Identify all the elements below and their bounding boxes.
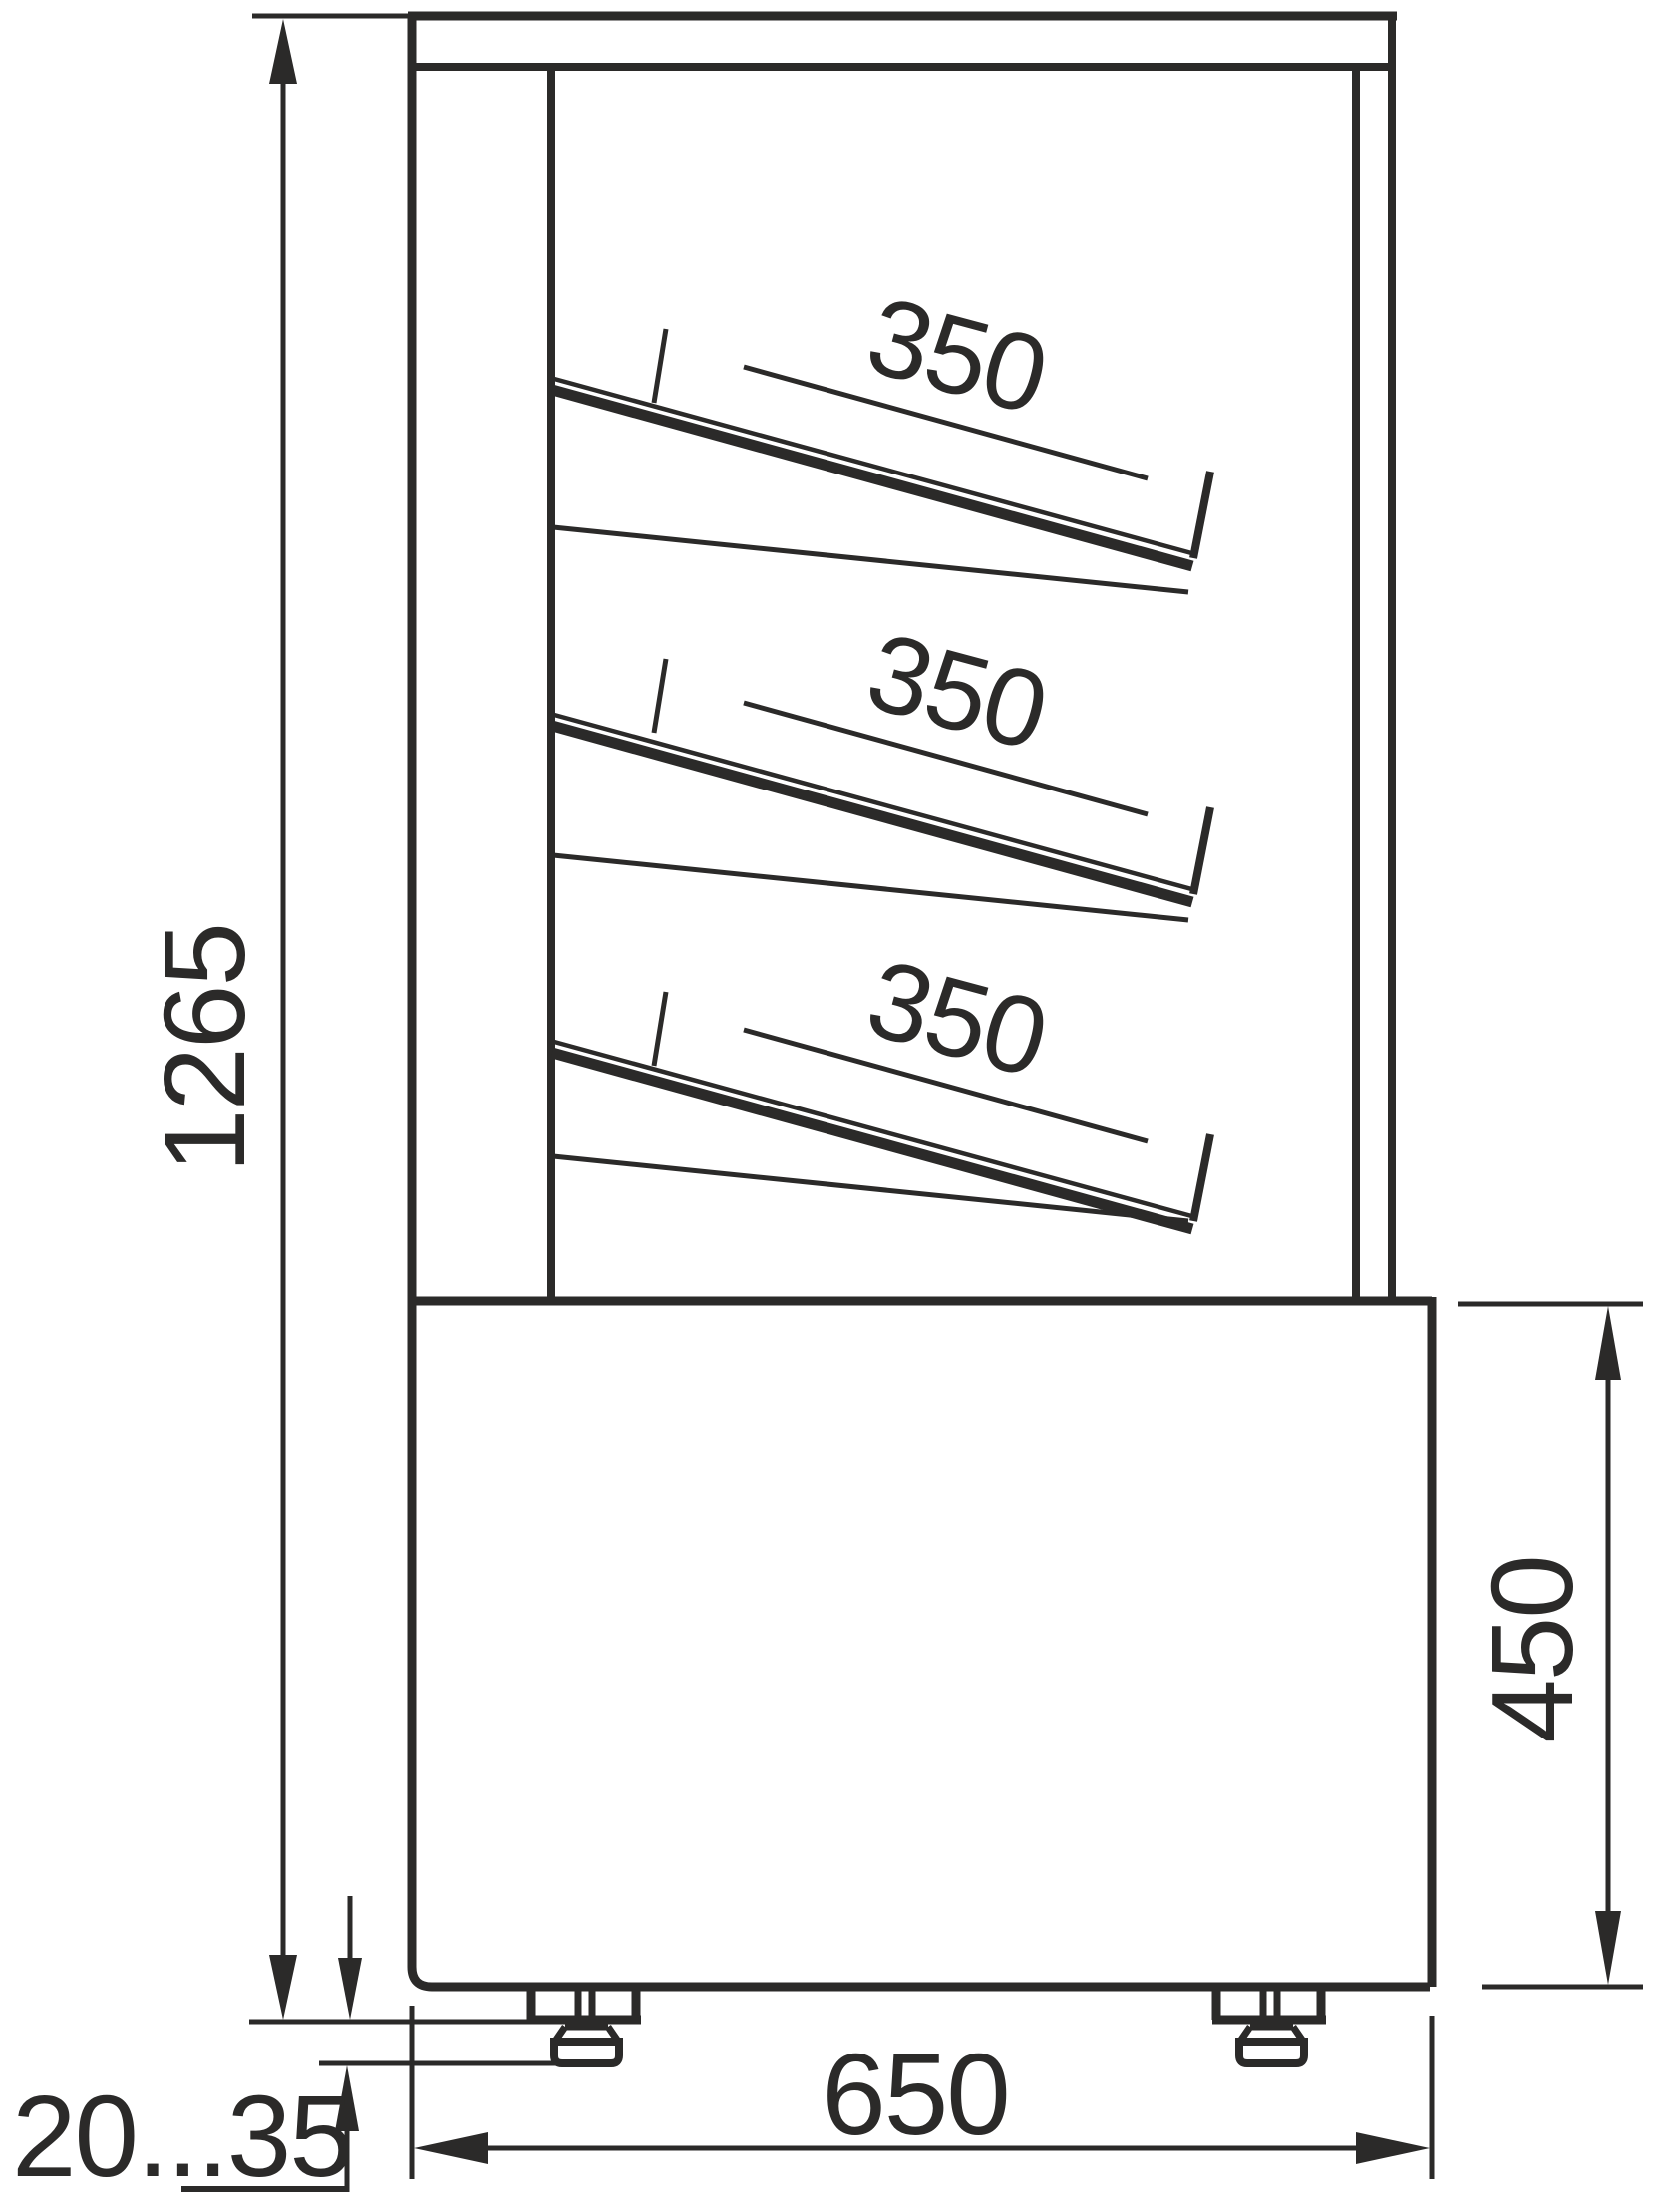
dim-shelf-2-depth: 350 — [654, 609, 1148, 814]
display-case-side-view-drawing: 350 350 350 — [0, 0, 1654, 2212]
dim-overall-height: 1265 — [140, 19, 531, 2022]
shelf-2: 350 — [552, 609, 1210, 920]
arrow-up — [269, 19, 297, 84]
drawing-canvas: 350 350 350 — [0, 0, 1654, 2212]
shelf-bracket-bottom-line — [553, 855, 1188, 920]
arrow-left — [414, 2132, 488, 2164]
shelf-surface-line — [552, 726, 1192, 902]
overall-height-label: 1265 — [140, 924, 269, 1173]
arrow-down — [1595, 1911, 1621, 1985]
shelf-front-lip — [1193, 807, 1210, 894]
shelf-surface-line — [552, 1053, 1192, 1229]
dim-base-height: 450 — [1458, 1304, 1643, 1987]
adjustable-foot-right — [1212, 1987, 1326, 2063]
arrow-right — [1356, 2132, 1430, 2164]
dim-shelf-3-depth: 350 — [654, 936, 1148, 1141]
foot-pad — [1239, 2042, 1304, 2063]
witness-tick-left — [654, 992, 666, 1066]
shelf-1: 350 — [552, 273, 1210, 592]
dim-shelf-1-depth: 350 — [654, 273, 1148, 478]
shelf-3-depth-label: 350 — [855, 936, 1058, 1101]
witness-tick-left — [654, 659, 666, 733]
arrow-down-small — [338, 1958, 362, 2020]
adjustable-foot-left — [527, 1987, 641, 2063]
feet-adjustment-label: 20...35 — [12, 2071, 352, 2201]
shelf-front-lip — [1193, 472, 1210, 558]
arrow-up — [1595, 1306, 1621, 1380]
shelf-1-depth-label: 350 — [855, 273, 1058, 438]
witness-tick-left — [654, 329, 666, 403]
base-height-label: 450 — [1468, 1556, 1597, 1743]
shelf-front-lip — [1193, 1134, 1210, 1221]
base-width-label: 650 — [822, 2030, 1009, 2159]
shelf-surface-line — [552, 390, 1192, 566]
foot-pad — [554, 2042, 619, 2063]
shelf-2-depth-label: 350 — [855, 609, 1058, 774]
cabinet-outline — [252, 14, 1432, 1987]
arrow-down — [269, 1955, 297, 2020]
shelf-3: 350 — [552, 936, 1210, 1229]
